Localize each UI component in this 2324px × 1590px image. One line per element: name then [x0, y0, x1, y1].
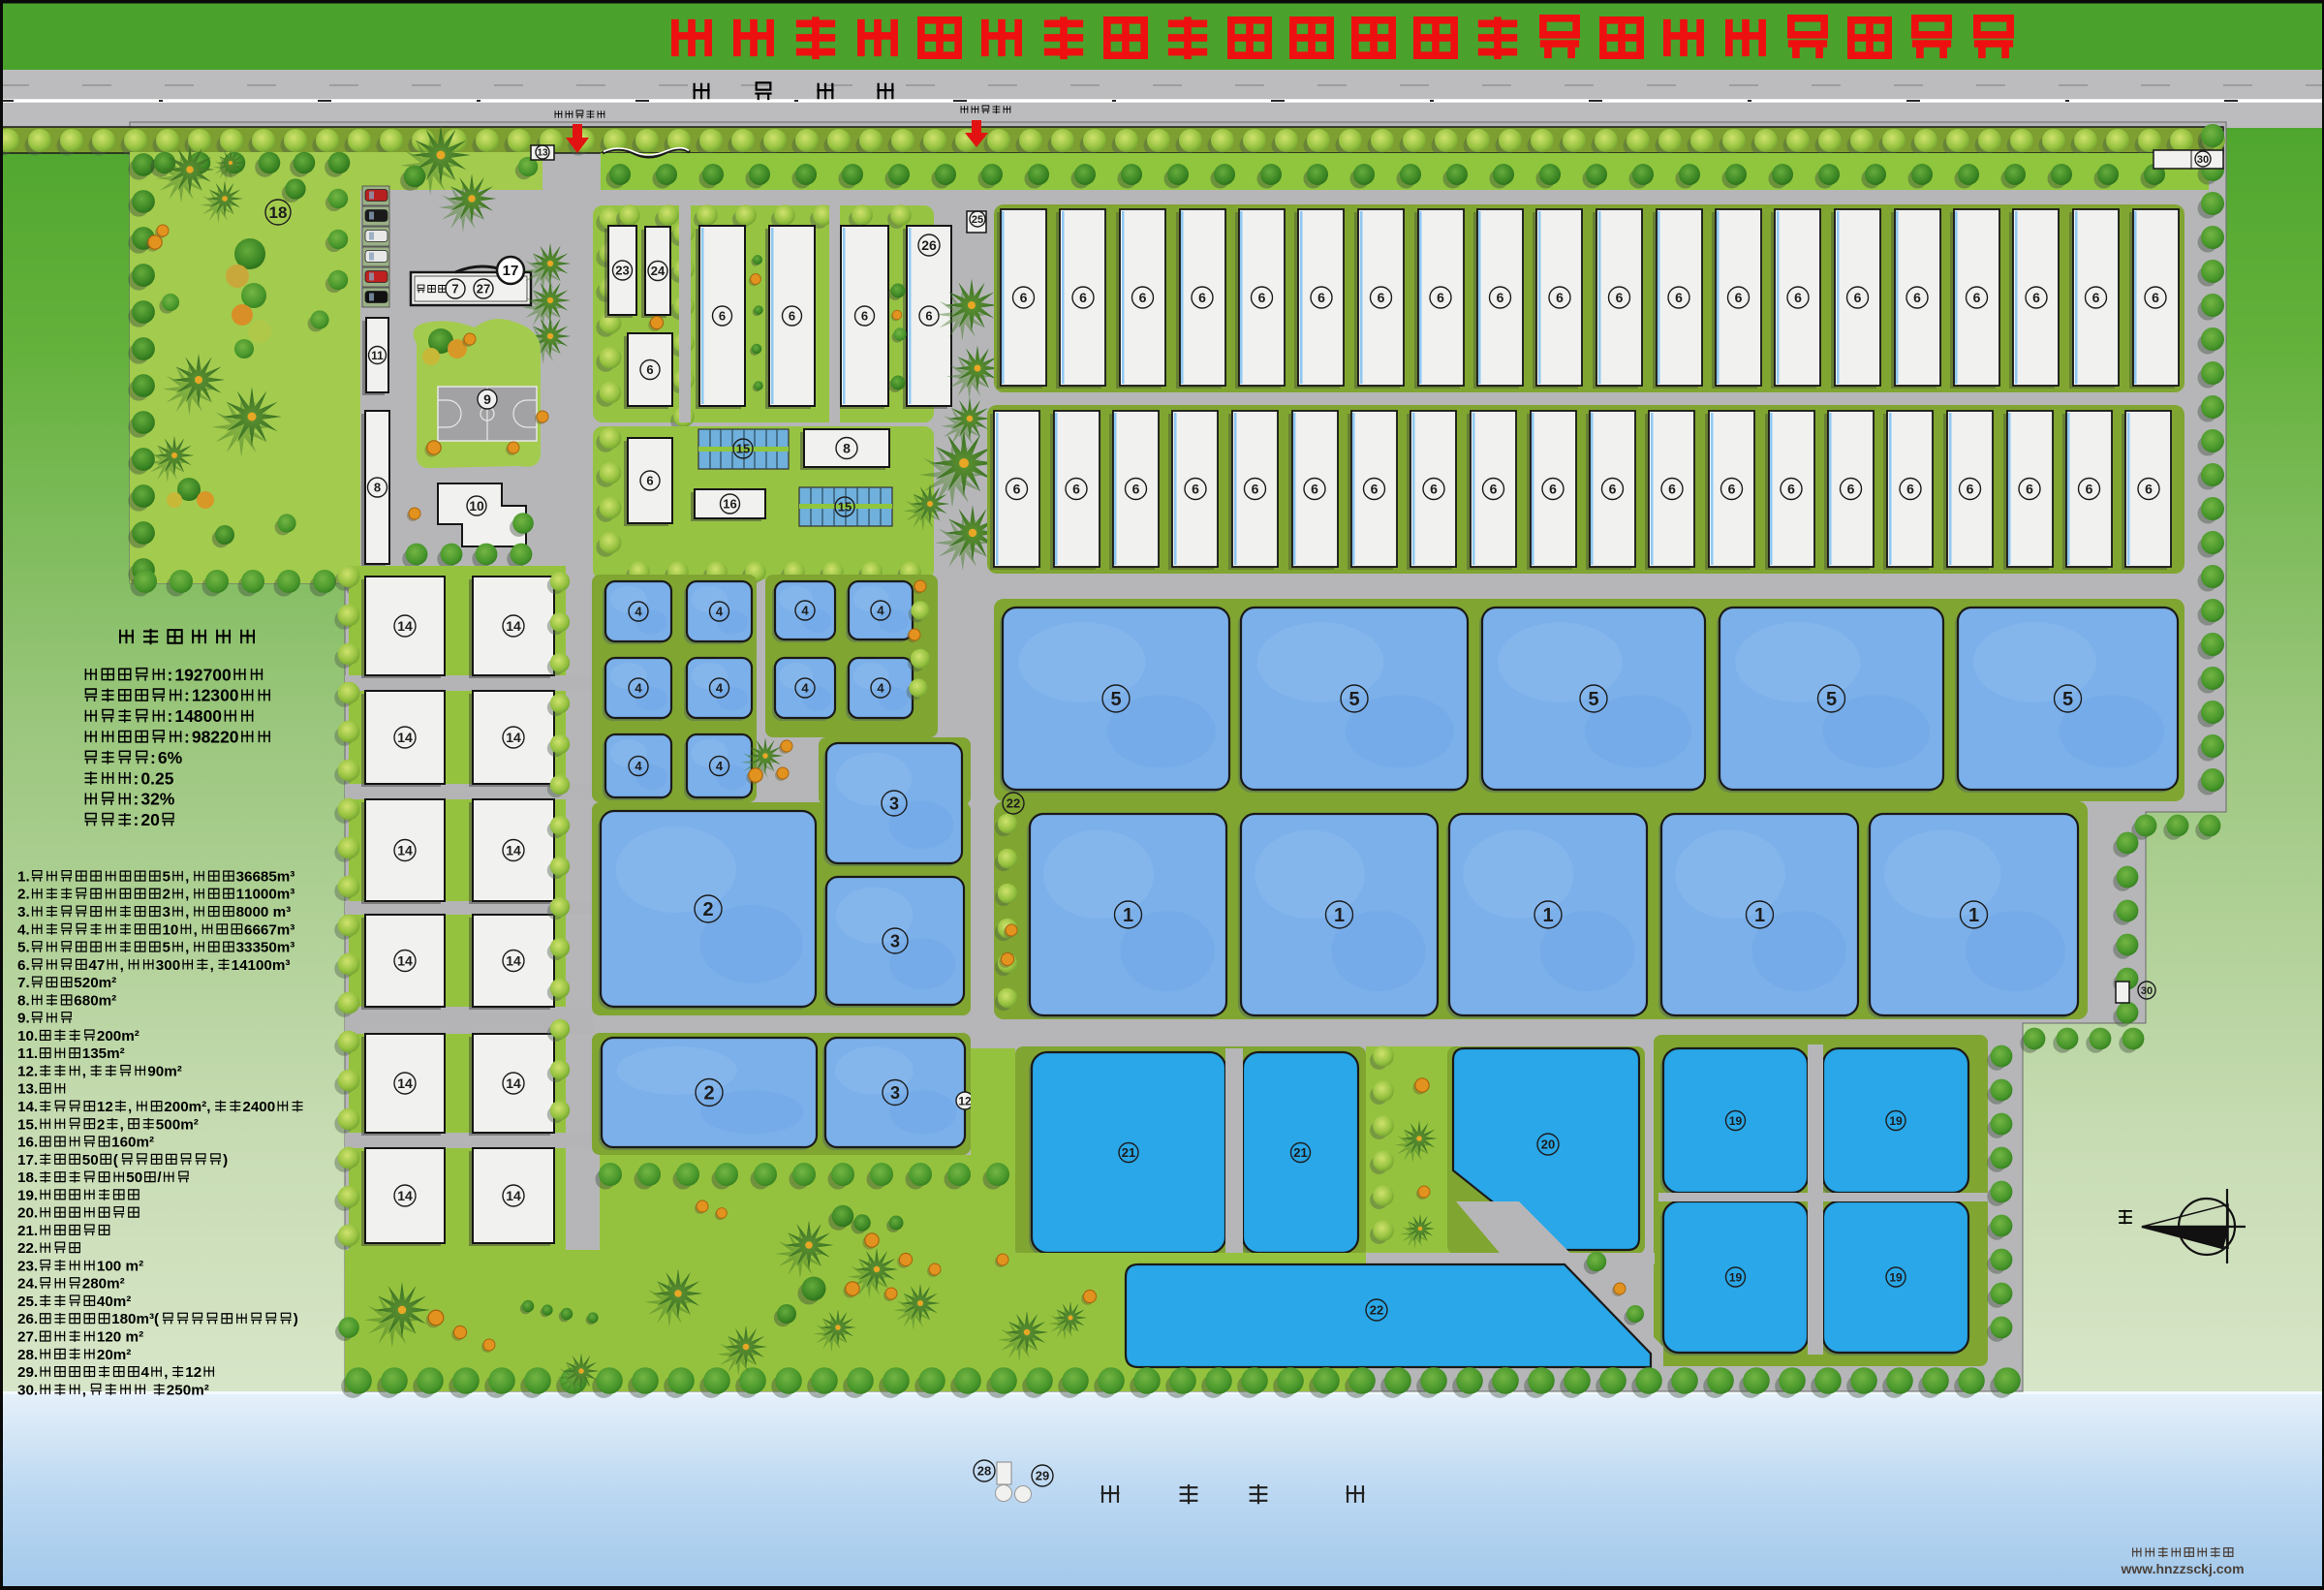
svg-text:6: 6 [1668, 482, 1676, 497]
svg-text:3: 3 [890, 932, 900, 951]
svg-text:6: 6 [1139, 290, 1147, 305]
svg-text:15: 15 [736, 442, 750, 456]
svg-text:3: 3 [890, 1083, 900, 1103]
svg-text:6: 6 [1735, 290, 1743, 305]
svg-text::20: :20 [134, 810, 161, 829]
svg-text:19: 19 [1729, 1114, 1743, 1128]
svg-text:6: 6 [1728, 482, 1736, 497]
svg-text:2: 2 [703, 1083, 714, 1105]
svg-text:6: 6 [1556, 290, 1564, 305]
svg-text:6: 6 [925, 309, 932, 324]
svg-text:6: 6 [1675, 290, 1683, 305]
svg-text:1: 1 [1334, 905, 1345, 926]
svg-text:6: 6 [646, 474, 653, 488]
svg-text:6: 6 [1079, 290, 1087, 305]
svg-text:1: 1 [1542, 905, 1553, 926]
svg-text:3: 3 [889, 795, 899, 814]
svg-text:8: 8 [374, 481, 381, 495]
svg-text:14: 14 [397, 618, 413, 634]
svg-text:14: 14 [506, 953, 521, 969]
svg-text:6: 6 [1378, 290, 1385, 305]
svg-text:14: 14 [506, 618, 521, 634]
svg-text:4: 4 [635, 681, 642, 696]
svg-text:4: 4 [716, 681, 724, 696]
svg-text:16: 16 [723, 497, 736, 512]
svg-text:6: 6 [1020, 290, 1028, 305]
svg-text:6: 6 [1913, 290, 1921, 305]
svg-text:14: 14 [506, 1188, 521, 1203]
svg-text:1: 1 [1968, 905, 1979, 926]
svg-text:5: 5 [2062, 689, 2073, 710]
svg-text:9.: 9. [17, 1011, 30, 1027]
svg-text:6: 6 [1854, 290, 1862, 305]
svg-text:14: 14 [506, 730, 521, 745]
svg-text:29: 29 [1036, 1469, 1049, 1483]
svg-text::12300: :12300 [184, 686, 239, 705]
svg-text:4: 4 [635, 759, 642, 773]
svg-text:6: 6 [1497, 290, 1504, 305]
svg-text:6: 6 [1787, 482, 1795, 497]
svg-text:6: 6 [789, 309, 795, 324]
svg-text:6: 6 [1198, 290, 1206, 305]
svg-text:6: 6 [2092, 290, 2100, 305]
svg-text:5: 5 [1110, 689, 1121, 710]
svg-text:6: 6 [1311, 482, 1318, 497]
svg-text:6: 6 [1549, 482, 1557, 497]
svg-text:6: 6 [1252, 482, 1259, 497]
svg-text:6: 6 [646, 362, 653, 377]
svg-text::14800: :14800 [168, 706, 223, 726]
svg-text:6: 6 [1072, 482, 1080, 497]
svg-text:21: 21 [1293, 1145, 1307, 1160]
svg-text:6: 6 [1967, 482, 1974, 497]
svg-text:5: 5 [1826, 689, 1837, 710]
svg-text:19: 19 [1729, 1270, 1743, 1284]
svg-text:14: 14 [397, 953, 413, 969]
svg-text:6: 6 [1616, 290, 1624, 305]
svg-text:15: 15 [838, 500, 852, 514]
svg-text:5: 5 [1348, 689, 1359, 710]
svg-text::6%: :6% [150, 748, 183, 767]
svg-text::192700: :192700 [168, 665, 232, 684]
svg-text:27: 27 [477, 282, 490, 296]
svg-text:6: 6 [1013, 482, 1021, 497]
svg-text:20.: 20. [17, 1205, 38, 1222]
svg-text:14: 14 [506, 843, 521, 858]
svg-text:6: 6 [1609, 482, 1617, 497]
svg-text:14: 14 [397, 843, 413, 858]
svg-text:4: 4 [635, 605, 642, 619]
svg-text:22: 22 [1370, 1303, 1383, 1318]
svg-text:9: 9 [483, 391, 491, 407]
svg-text:28: 28 [977, 1464, 991, 1479]
svg-text:13.: 13. [17, 1081, 38, 1098]
svg-text:2: 2 [702, 899, 713, 920]
svg-text:22: 22 [1007, 796, 1020, 811]
svg-text:6: 6 [1794, 290, 1802, 305]
svg-text:10: 10 [469, 498, 484, 514]
svg-text:6: 6 [1371, 482, 1379, 497]
svg-text:6: 6 [719, 309, 726, 324]
svg-text:6: 6 [2026, 482, 2033, 497]
svg-text::98220: :98220 [184, 728, 239, 747]
svg-text:21: 21 [1122, 1145, 1135, 1160]
svg-text:25: 25 [972, 214, 983, 226]
svg-text:4: 4 [801, 604, 809, 618]
svg-text:14: 14 [397, 1188, 413, 1203]
svg-text:26: 26 [921, 237, 937, 253]
svg-text:21.: 21. [17, 1223, 38, 1239]
svg-text:6: 6 [2086, 482, 2093, 497]
svg-text:4: 4 [877, 604, 884, 618]
svg-text:6: 6 [2145, 482, 2153, 497]
svg-text:6: 6 [1258, 290, 1266, 305]
svg-text:6: 6 [1132, 482, 1140, 497]
svg-text:11: 11 [371, 349, 384, 362]
svg-text:4: 4 [716, 759, 724, 773]
svg-text:6: 6 [1437, 290, 1444, 305]
svg-text:24: 24 [651, 264, 666, 278]
svg-text:6: 6 [1847, 482, 1855, 497]
svg-text:14: 14 [397, 1076, 413, 1091]
svg-text:8: 8 [843, 441, 851, 456]
svg-text:www.hnzzsckj.com: www.hnzzsckj.com [2120, 1561, 2244, 1576]
svg-text:12: 12 [958, 1094, 972, 1107]
svg-text:14: 14 [397, 730, 413, 745]
svg-text:6: 6 [1973, 290, 1981, 305]
svg-text:23: 23 [615, 264, 629, 278]
svg-text:6: 6 [1430, 482, 1438, 497]
svg-text:4: 4 [801, 681, 809, 696]
svg-text:30: 30 [2197, 154, 2209, 166]
svg-text:6: 6 [2032, 290, 2040, 305]
svg-text:1: 1 [1123, 905, 1133, 926]
svg-text:13: 13 [537, 148, 548, 159]
svg-text:18: 18 [269, 203, 288, 222]
svg-text:6: 6 [861, 309, 868, 324]
svg-text:6: 6 [2152, 290, 2159, 305]
svg-text:6: 6 [1192, 482, 1199, 497]
svg-text:5: 5 [1588, 689, 1598, 710]
svg-text:19: 19 [1889, 1114, 1903, 1128]
svg-text:30: 30 [2141, 985, 2153, 997]
svg-text:22.: 22. [17, 1240, 38, 1257]
svg-text:7: 7 [451, 282, 458, 296]
svg-text:4: 4 [716, 605, 724, 619]
svg-text:1: 1 [1754, 905, 1765, 926]
svg-text:6: 6 [1906, 482, 1914, 497]
svg-text:19: 19 [1889, 1270, 1903, 1284]
svg-text:20: 20 [1541, 1138, 1555, 1152]
svg-text:14: 14 [506, 1076, 521, 1091]
svg-text:4: 4 [877, 681, 884, 696]
svg-text:6: 6 [1490, 482, 1498, 497]
svg-text:19.: 19. [17, 1187, 38, 1203]
svg-text:17: 17 [503, 263, 519, 279]
svg-text:6: 6 [1317, 290, 1325, 305]
